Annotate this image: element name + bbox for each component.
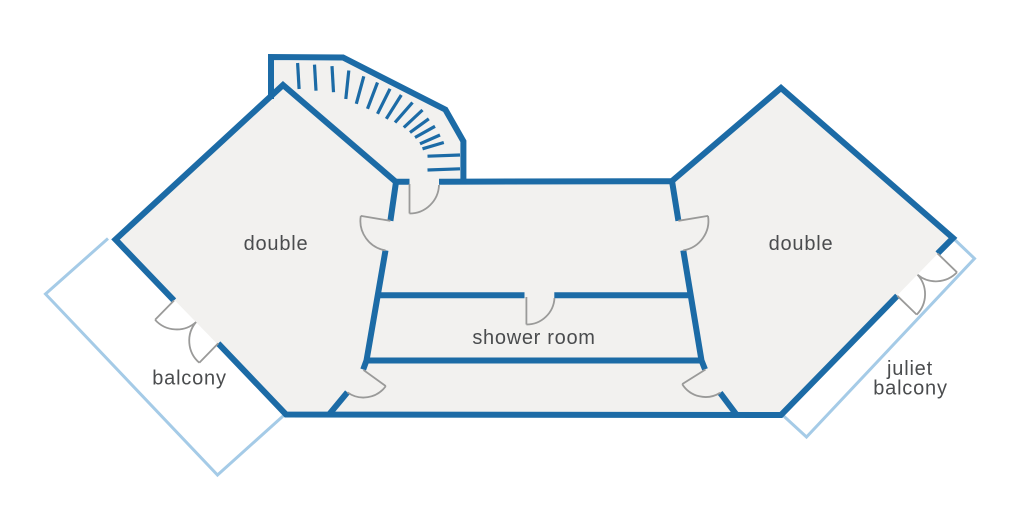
svg-text:balcony: balcony [873,378,948,400]
svg-text:double: double [769,233,834,255]
svg-text:balcony: balcony [152,368,227,390]
svg-text:double: double [244,233,309,255]
svg-text:shower room: shower room [472,327,595,349]
